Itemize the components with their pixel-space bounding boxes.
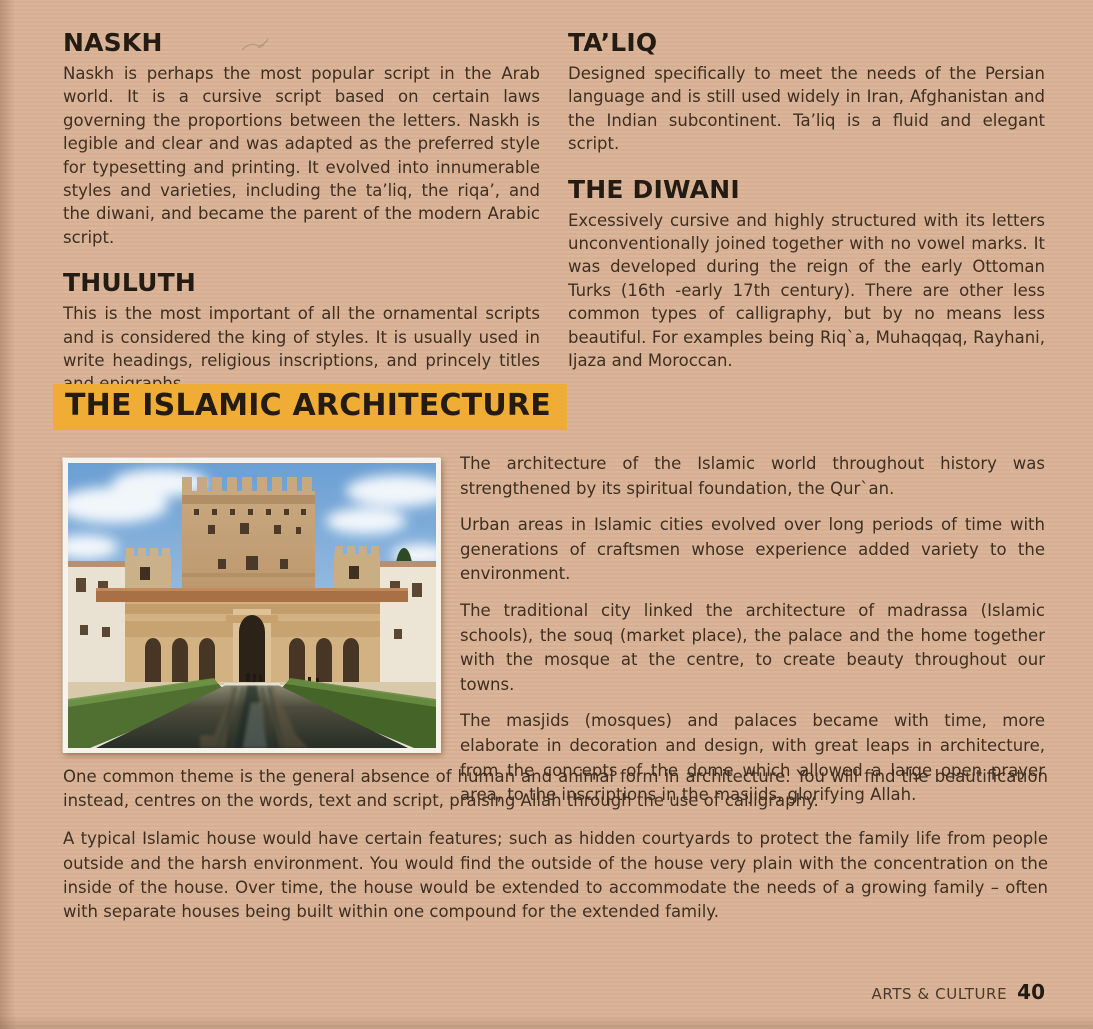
portal-doorway	[239, 615, 265, 684]
section-heading-taliq: TA’LIQ	[568, 28, 1045, 57]
architecture-paragraph-6: A typical Islamic house would have certa…	[63, 827, 1048, 924]
architecture-paragraph-1: The architecture of the Islamic world th…	[460, 452, 1045, 501]
arcade-facade	[125, 602, 380, 685]
pencil-mark	[238, 34, 272, 56]
section-heading-thuluth: THULUTH	[63, 268, 540, 297]
architecture-paragraph-3: The traditional city linked the architec…	[460, 599, 1045, 697]
section-body-diwani: Excessively cursive and highly structure…	[568, 209, 1045, 373]
footer-section-label: ARTS & CULTURE	[871, 985, 1007, 1003]
scripts-left-column: NASKH Naskh is perhaps the most popular …	[63, 28, 540, 415]
architecture-text-full-width: One common theme is the general absence …	[63, 765, 1048, 938]
alhambra-courtyard-illustration	[68, 463, 436, 748]
section-body-naskh: Naskh is perhaps the most popular script…	[63, 62, 540, 249]
architecture-section-heading: THE ISLAMIC ARCHITECTURE	[53, 384, 567, 430]
architecture-paragraph-5: One common theme is the general absence …	[63, 765, 1048, 813]
section-heading-diwani: THE DIWANI	[568, 175, 1045, 204]
architecture-heading-wrap: THE ISLAMIC ARCHITECTURE	[53, 384, 567, 430]
footer-page-number: 40	[1017, 980, 1045, 1004]
comares-tower	[182, 477, 315, 603]
roof-highlight	[96, 588, 408, 591]
scripts-right-column: TA’LIQ Designed specifically to meet the…	[568, 28, 1045, 415]
section-heading-naskh: NASKH	[63, 28, 540, 57]
right-wing	[380, 561, 436, 686]
scripts-columns: NASKH Naskh is perhaps the most popular …	[63, 28, 1045, 415]
left-wing	[68, 561, 125, 686]
page-footer: ARTS & CULTURE 40	[871, 980, 1045, 1004]
architecture-photo	[63, 458, 441, 753]
section-body-thuluth: This is the most important of all the or…	[63, 302, 540, 396]
section-body-taliq: Designed specifically to meet the needs …	[568, 62, 1045, 156]
architecture-paragraph-2: Urban areas in Islamic cities evolved ov…	[460, 513, 1045, 587]
